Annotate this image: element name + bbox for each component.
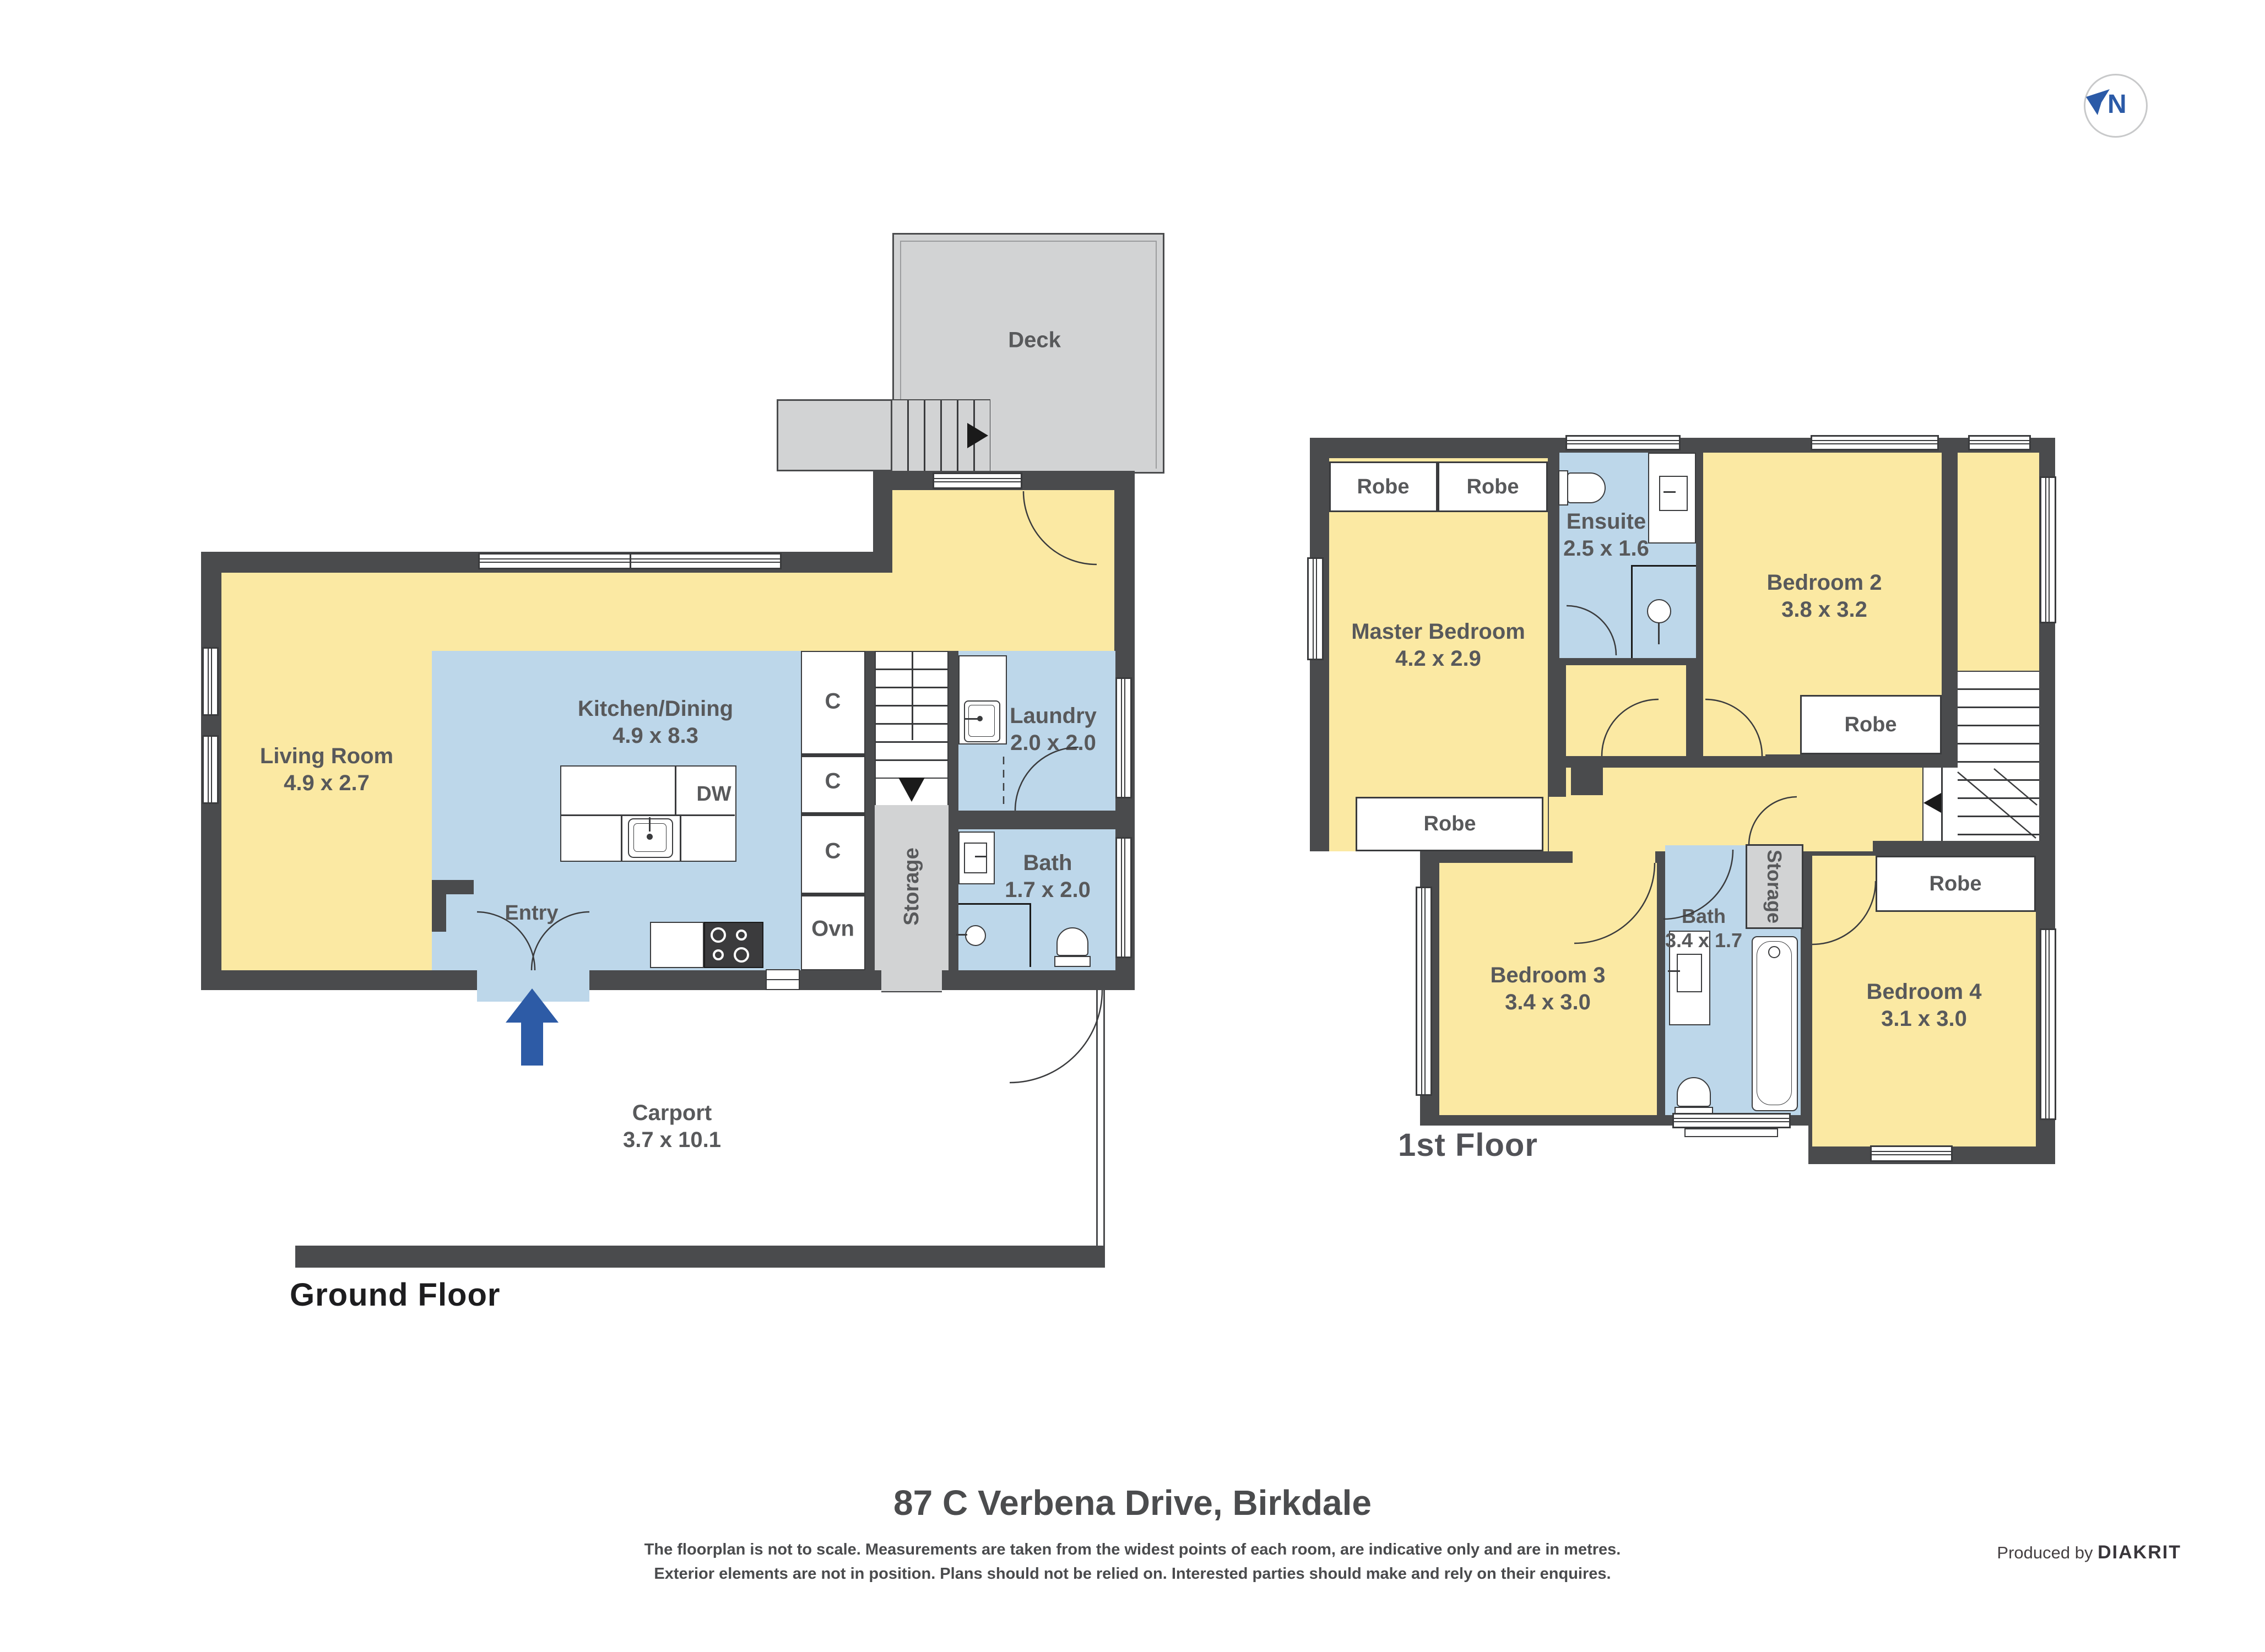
- ff-wall-ensuite-bottom: [1548, 658, 1697, 665]
- gf-toilet-icon: [1056, 927, 1088, 956]
- tub-drain: [1768, 946, 1780, 958]
- robe-label-1: Robe: [1357, 474, 1410, 499]
- ff-wall-bed2-landing: [1942, 453, 1958, 754]
- deck-stair-landing: [777, 399, 892, 471]
- ff-floor-bed3-doorgap: [1573, 851, 1655, 863]
- sink-drain: [977, 716, 983, 721]
- brand-logo: DIAKRIT: [2098, 1542, 2181, 1563]
- ff-bath-dims: 3.4 x 1.7: [1665, 928, 1742, 953]
- room-label-ensuite: Ensuite 2.5 x 1.6: [1563, 508, 1649, 562]
- robe-label-4: Robe: [1845, 712, 1897, 737]
- ensuite-name: Ensuite: [1567, 509, 1646, 534]
- room-label-ff-storage: Storage: [1762, 850, 1786, 923]
- window-gf-top: [478, 553, 782, 569]
- ensuite-shower-wall-top: [1631, 565, 1696, 567]
- gf-wall-laundry-bath: [958, 811, 1115, 829]
- ground-floor-title: Ground Floor: [290, 1276, 501, 1313]
- window-ff-bed3-left: [1416, 887, 1432, 1096]
- ff-wall-under-robe2: [1765, 754, 1955, 768]
- step-line: [767, 979, 799, 980]
- gf-wall-stub-h: [432, 880, 474, 894]
- bed2-dims: 3.8 x 3.2: [1767, 596, 1882, 623]
- gf-floor-living: [221, 651, 432, 970]
- bed3-dims: 3.4 x 3.0: [1491, 989, 1606, 1016]
- vanity-basin: [1659, 476, 1688, 511]
- carport-side-line: [1096, 990, 1105, 1246]
- entry-arrow-stem: [521, 1023, 543, 1066]
- produced-by-text: Produced by: [1997, 1543, 2093, 1562]
- stove-counter: [650, 922, 704, 968]
- ff-toilet-icon: [1677, 1077, 1711, 1107]
- ensuite-toilet-icon: [1567, 472, 1606, 503]
- island-line: [675, 767, 676, 814]
- compass-n-label: N: [2107, 89, 2127, 119]
- window-gf-left-2: [202, 735, 219, 804]
- dishwasher-label: DW: [696, 781, 731, 807]
- room-label-laundry: Laundry 2.0 x 2.0: [1010, 703, 1097, 757]
- gf-bath-vanity: [958, 832, 995, 884]
- vanity-tap: [1663, 491, 1676, 493]
- ff-wall-hall-1: [1582, 756, 1660, 768]
- stair-tread: [1941, 768, 1943, 841]
- room-label-bed3: Bedroom 3 3.4 x 3.0: [1491, 962, 1606, 1016]
- window-ff-landing: [1968, 435, 2031, 450]
- bed4-dims: 3.1 x 3.0: [1867, 1006, 1982, 1032]
- room-label-kitchen: Kitchen/Dining 4.9 x 8.3: [578, 695, 733, 749]
- first-floor-title: 1st Floor: [1398, 1127, 1538, 1164]
- stove-icon: [704, 922, 763, 968]
- room-label-entry: Entry: [505, 900, 558, 926]
- bed2-name: Bedroom 2: [1767, 570, 1882, 595]
- disclaimer-line-2: Exterior elements are not in position. P…: [0, 1565, 2265, 1583]
- window-gf-laundry: [1115, 677, 1132, 798]
- ff-floor-landing: [1958, 453, 2039, 671]
- oven-label: Ovn: [811, 916, 854, 943]
- room-label-gf-bath: Bath 1.7 x 2.0: [1005, 850, 1091, 904]
- window-ff-master-left: [1307, 557, 1324, 660]
- divider: [802, 753, 864, 757]
- divider: [802, 893, 864, 896]
- stair-divider: [912, 652, 913, 740]
- laundry-sink-icon: [964, 700, 1000, 742]
- cupboard-label-2: C: [825, 768, 841, 795]
- burner: [736, 930, 747, 941]
- ensuite-toilet-tank: [1558, 470, 1568, 506]
- window-mullion: [630, 555, 631, 568]
- vanity-basin: [1677, 954, 1702, 992]
- ensuite-vanity: [1648, 453, 1696, 544]
- burner: [711, 927, 726, 943]
- ff-floor-hall-upper: [1566, 665, 1686, 756]
- robe-label-5: Robe: [1930, 871, 1982, 896]
- window-ff-bed2-top: [1811, 435, 1939, 450]
- gf-floor-dining: [892, 490, 1114, 651]
- ff-wall-master-b: [1548, 756, 1566, 797]
- window-gf-dining: [933, 472, 1022, 489]
- kitchen-dims: 4.9 x 8.3: [578, 722, 733, 749]
- island-sink-icon: [628, 818, 673, 858]
- island-line: [561, 814, 735, 816]
- carport-dims: 3.7 x 10.1: [623, 1127, 721, 1154]
- island-line: [621, 814, 622, 861]
- window-ff-bed2-right: [2040, 476, 2056, 623]
- window-ff-bath-bottom: [1672, 1113, 1791, 1128]
- robe-label-3: Robe: [1424, 811, 1476, 836]
- storage-exterior-door-arc: [1010, 990, 1102, 1083]
- bed3-name: Bedroom 3: [1491, 963, 1606, 987]
- gf-bath-name: Bath: [1023, 851, 1072, 875]
- entry-arrow-icon: [506, 988, 559, 1023]
- sink-tap: [649, 817, 651, 832]
- gf-toilet-tank: [1054, 956, 1091, 967]
- gf-stairs: [875, 651, 949, 779]
- ensuite-shower-wall-left: [1631, 565, 1633, 658]
- living-name: Living Room: [260, 744, 393, 768]
- room-label-bed2: Bedroom 2 3.8 x 3.2: [1767, 569, 1882, 623]
- gf-wall-strip1: [865, 651, 875, 970]
- island-line: [680, 814, 681, 861]
- gf-shower-wall-right: [1029, 903, 1031, 967]
- deck-stairs-arrow-icon: [967, 423, 988, 448]
- room-label-bed4: Bedroom 4 3.1 x 3.0: [1867, 979, 1982, 1032]
- gf-stairs-down-arrow-icon: [898, 778, 925, 802]
- floorplan-page: N Deck C C C Ovn Storage: [0, 0, 2265, 1652]
- address-title: 87 C Verbena Drive, Birkdale: [0, 1482, 2265, 1523]
- ff-stairs-arrow-icon: [1923, 793, 1941, 813]
- laundry-dims: 2.0 x 2.0: [1010, 730, 1097, 757]
- gf-shower-head-icon: [965, 925, 986, 946]
- vanity-tap: [975, 856, 986, 857]
- produced-by: Produced by DIAKRIT: [1873, 1542, 2181, 1563]
- carport-name: Carport: [632, 1101, 712, 1125]
- back-step: [766, 969, 800, 990]
- window-ff-bed4-right: [2040, 928, 2056, 1120]
- ff-wall-under-stairs: [1873, 841, 2055, 856]
- laundry-name: Laundry: [1010, 704, 1097, 728]
- burner: [734, 947, 749, 963]
- window-ff-ensuite: [1565, 435, 1681, 450]
- window-gf-left-1: [202, 647, 219, 716]
- ff-wall-master-a: [1548, 665, 1566, 702]
- window-ff-bath-sill: [1684, 1128, 1778, 1137]
- cupboard-label-1: C: [825, 688, 841, 715]
- living-dims: 4.9 x 2.7: [260, 770, 393, 797]
- room-label-master: Master Bedroom 4.2 x 2.9: [1351, 618, 1525, 672]
- ensuite-shower-head-icon: [1647, 599, 1671, 623]
- room-label-gf-storage: Storage: [899, 847, 924, 925]
- robe-label-2: Robe: [1467, 474, 1519, 499]
- room-label-ff-bath: Bath 3.4 x 1.7: [1665, 904, 1742, 953]
- vanity-basin: [964, 843, 987, 873]
- ff-wall-ens-bed2: [1686, 658, 1703, 768]
- tub-inner: [1757, 941, 1792, 1105]
- gf-bath-dims: 1.7 x 2.0: [1005, 877, 1091, 904]
- sink-tap: [964, 718, 978, 720]
- gf-wall-stub-v: [432, 894, 446, 932]
- window-gf-bath: [1115, 837, 1132, 958]
- ff-stairs: [1958, 671, 2039, 841]
- room-label-living: Living Room 4.9 x 2.7: [260, 743, 393, 797]
- bed4-name: Bedroom 4: [1867, 980, 1982, 1004]
- gf-shower-arm: [956, 934, 967, 936]
- gf-floor-topband: [221, 573, 892, 651]
- ensuite-dims: 2.5 x 1.6: [1563, 535, 1649, 562]
- ff-wall-hall-jog: [1571, 768, 1603, 795]
- carport-bottom-wall: [295, 1246, 1105, 1268]
- gf-wall-strip2: [949, 651, 958, 970]
- ff-floor-hall: [1549, 768, 1922, 851]
- master-dims: 4.2 x 2.9: [1351, 645, 1525, 672]
- cupboard-label-3: C: [825, 838, 841, 865]
- sink-drain: [647, 834, 653, 840]
- bathtub-icon: [1752, 936, 1798, 1111]
- burner: [713, 949, 724, 960]
- room-label-deck: Deck: [1008, 327, 1061, 354]
- ff-bath-name: Bath: [1682, 905, 1726, 927]
- room-label-carport: Carport 3.7 x 10.1: [623, 1100, 721, 1154]
- master-name: Master Bedroom: [1351, 619, 1525, 644]
- divider: [802, 812, 864, 816]
- window-ff-bed4-bottom: [1870, 1145, 1953, 1162]
- ff-wall-hall-2: [1703, 756, 1765, 768]
- kitchen-name: Kitchen/Dining: [578, 697, 733, 721]
- gf-storage-stub: [881, 970, 942, 992]
- vanity-tap: [1668, 970, 1680, 972]
- ensuite-shower-arm: [1658, 622, 1660, 644]
